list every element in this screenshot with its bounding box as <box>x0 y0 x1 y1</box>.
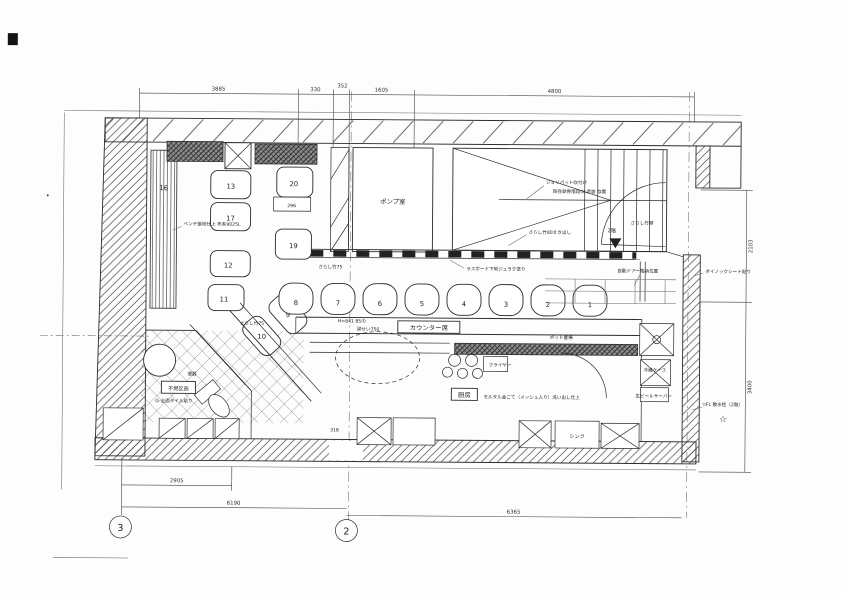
sink-width-dim: 318 <box>330 427 339 433</box>
dim-bottom-1: 2905 <box>170 478 184 484</box>
service-area-dashed <box>335 331 419 384</box>
kitchen-label: 厨房 <box>458 390 471 399</box>
dim-top-5: 4800 <box>548 89 562 95</box>
fryer-label: フライヤー <box>489 362 512 368</box>
dim-top-1: 3885 <box>212 87 226 93</box>
dim-right-1: 2103 <box>748 239 754 253</box>
gas-burner <box>457 368 467 378</box>
left-wall <box>95 118 147 456</box>
chair-number: 5 <box>420 300 424 308</box>
grid-bubble-2-label: 2 <box>343 526 349 537</box>
star-icon: ☆ <box>719 415 727 425</box>
counter-seats-label: カウンター席 <box>410 323 449 332</box>
bamboo75-note: さらし竹75 <box>318 263 342 270</box>
gas-burner <box>449 354 461 366</box>
kitchen-door-arc <box>561 353 606 398</box>
right-wall-upper <box>696 146 710 188</box>
lath-note: ラスボード下地ジュラク塗り <box>466 265 525 272</box>
auto-door-note: 自動ドアー格納位置 <box>617 267 659 274</box>
scan-mark <box>8 33 18 45</box>
chair-number: 1 <box>588 301 592 309</box>
sink-label: シンク <box>569 433 585 440</box>
chair-number: 2 <box>546 301 550 309</box>
booth-seat-number: 19 <box>289 242 298 250</box>
pump-room: ポンプ室 <box>330 147 433 252</box>
planter-box <box>167 141 223 161</box>
bamboo-screen <box>150 150 177 308</box>
chair-number: 6 <box>378 300 382 308</box>
dim-bottom-3: 6365 <box>507 510 521 516</box>
prep-table <box>393 418 435 445</box>
counter-chairs: 8 7 6 5 4 3 2 1 <box>279 283 607 316</box>
scan-streak <box>53 557 128 558</box>
floor-plan-sheet: ポンプ室 2階 さらし竹塀 <box>0 0 842 594</box>
booth-seat-number: 20 <box>289 180 298 188</box>
right-dimensions: 2103 3400 <box>699 190 755 472</box>
grid-bubble-3-label: 3 <box>117 523 123 534</box>
booth-seat-number: 13 <box>226 183 235 191</box>
chair-number: 7 <box>336 299 340 307</box>
right-wall-lower <box>682 255 700 462</box>
dim-top-4: 1605 <box>375 88 389 94</box>
counter-display-case <box>455 343 638 355</box>
sprinkler-note: ▽FL 散水栓（2階） <box>702 401 743 408</box>
mortar-note: モルタル金ごて（メッシュ入り）洗い出し仕上 <box>483 393 580 401</box>
dim-right-2: 3400 <box>747 380 753 394</box>
planter-box <box>255 144 317 164</box>
chair-number: 3 <box>504 301 508 309</box>
h841-note: H=841 85巾 <box>338 317 366 324</box>
booth-seat-number: 10 <box>257 333 266 341</box>
booth-seat-number: 12 <box>224 262 233 270</box>
pump-room-label: ポンプ室 <box>380 197 406 206</box>
floor2-label: 2階 <box>607 226 616 234</box>
booth-seat-number: 16 <box>159 184 168 192</box>
beam-note: 梁せい750 <box>357 326 380 333</box>
gas-burner <box>472 368 482 378</box>
round-table <box>143 344 175 376</box>
stairs <box>452 148 667 251</box>
bottom-dimensions: 2905 6190 6365 3 2 <box>109 458 682 544</box>
booth-seat-number: 11 <box>220 296 229 304</box>
chair-number: 4 <box>462 300 466 308</box>
dim-top-3: 352 <box>337 83 347 89</box>
scan-speck <box>47 194 49 196</box>
dim-top-2: 330 <box>310 87 321 93</box>
dim-bottom-2: 6190 <box>227 501 241 507</box>
table-dim: 296 <box>287 203 296 209</box>
floor-plan-drawing: ポンプ室 2階 さらし竹塀 <box>0 0 842 594</box>
gas-burner <box>466 354 478 366</box>
fire-box-label: 不燃区画 <box>168 384 189 392</box>
dinoc-note: ダイノックシート貼り <box>705 268 751 275</box>
booth-seat-number: 17 <box>226 215 235 223</box>
gas-burner <box>442 367 452 377</box>
chair-number: 8 <box>294 299 298 307</box>
bamboo-wall-band <box>310 253 636 255</box>
